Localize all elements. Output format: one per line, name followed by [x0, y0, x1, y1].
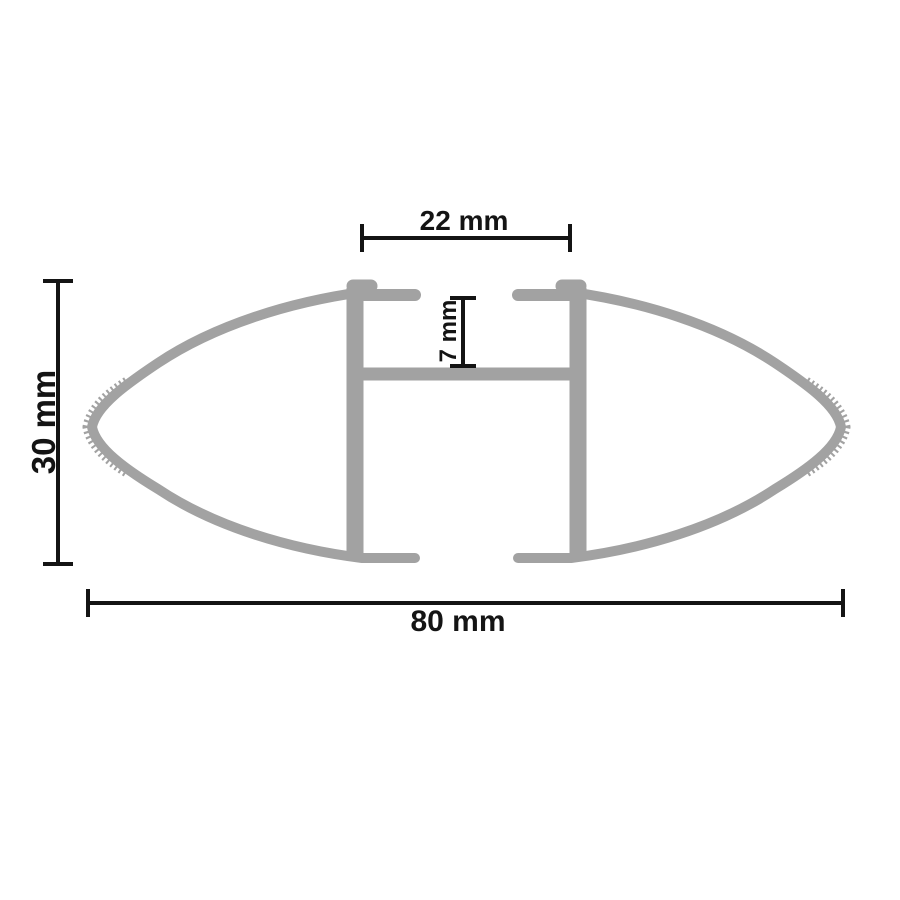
dimension-80mm: 80 mm — [88, 589, 843, 638]
dimension-30mm: 30 mm — [25, 281, 73, 564]
dimension-label-30mm: 30 mm — [25, 370, 62, 475]
dimension-7mm: 7 mm — [435, 298, 476, 366]
dimension-label-7mm: 7 mm — [435, 300, 462, 363]
crossbar-profile — [88, 286, 845, 558]
dimension-label-22mm: 22 mm — [420, 205, 509, 236]
dimension-annotations: 22 mm 7 mm 30 mm 80 mm — [25, 205, 843, 638]
wing-shell-right — [518, 292, 841, 558]
dimension-22mm: 22 mm — [362, 205, 570, 252]
diagram-canvas: 22 mm 7 mm 30 mm 80 mm — [0, 0, 900, 900]
profile-right-wing — [518, 286, 845, 558]
wing-shell-left — [92, 292, 415, 558]
profile-left-wing — [88, 286, 415, 558]
crossbar-cross-section-diagram: 22 mm 7 mm 30 mm 80 mm — [0, 0, 900, 900]
dimension-label-80mm: 80 mm — [410, 605, 505, 638]
